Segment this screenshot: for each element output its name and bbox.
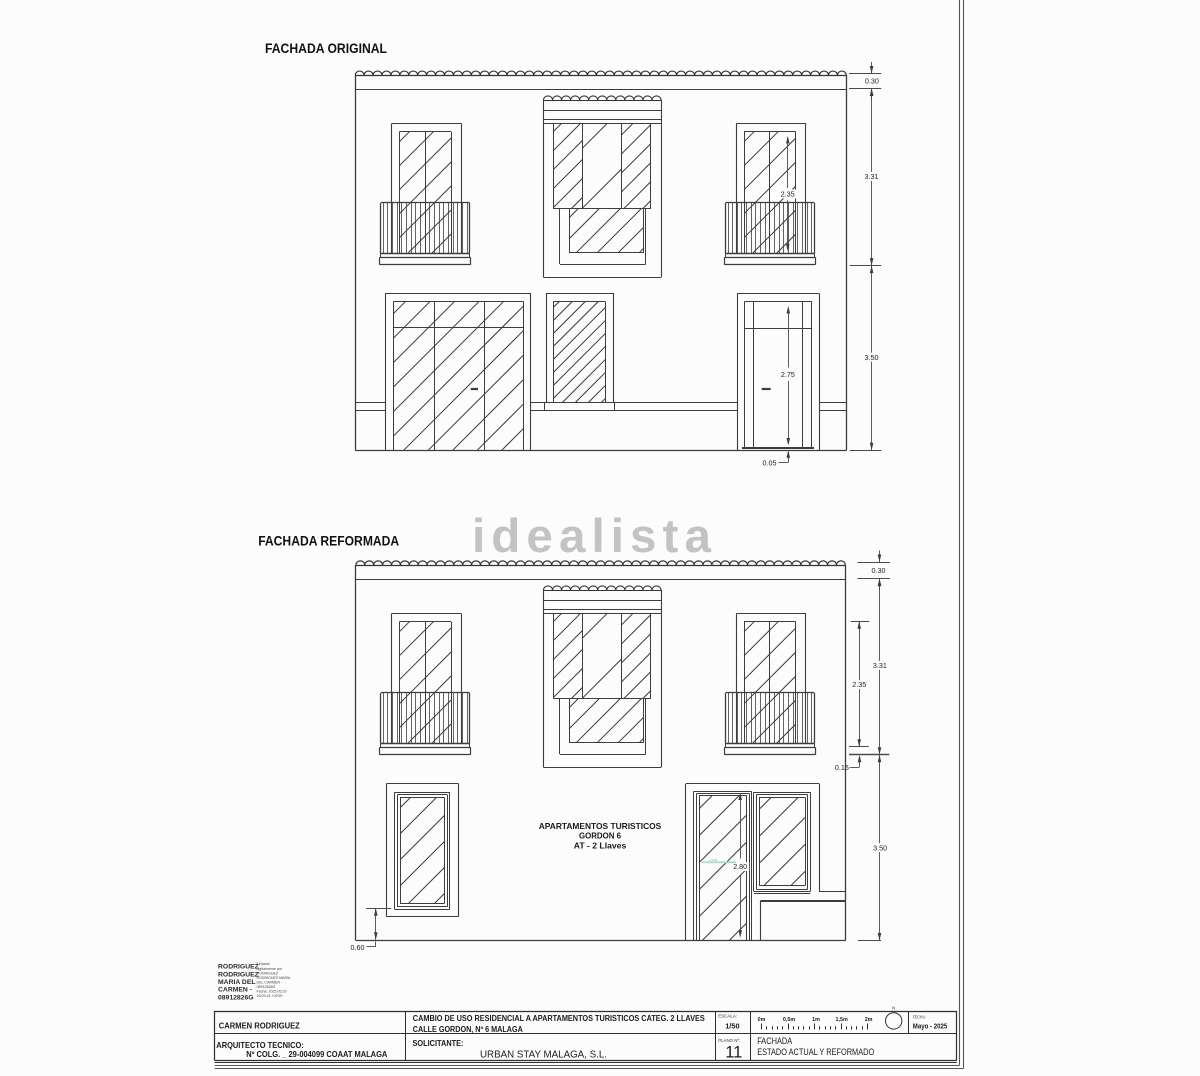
- svg-text:2.35: 2.35: [852, 680, 866, 689]
- svg-text:ESCALA:: ESCALA:: [718, 1014, 737, 1019]
- svg-text:0.30: 0.30: [865, 76, 879, 85]
- svg-text:URBAN STAY MALAGA, S.L.: URBAN STAY MALAGA, S.L.: [480, 1049, 607, 1061]
- svg-text:0.15: 0.15: [835, 763, 849, 772]
- svg-text:FACHADA: FACHADA: [757, 1036, 792, 1046]
- svg-text:Nº COLG. _ 29-004099 COAAT MA: Nº COLG. _ 29-004099 COAAT MALAGA: [246, 1050, 387, 1059]
- svg-text:RODRIGUEZ: RODRIGUEZ: [218, 971, 259, 978]
- svg-text:RODRIGUEZ: RODRIGUEZ: [257, 971, 279, 975]
- svg-text:18:09:24 +02'00': 18:09:24 +02'00': [257, 994, 284, 998]
- svg-text:Firmado: Firmado: [257, 962, 270, 966]
- svg-text:0.30: 0.30: [872, 566, 886, 575]
- svg-text:3.31: 3.31: [873, 661, 887, 670]
- svg-text:CARMEN RODRIGUEZ: CARMEN RODRIGUEZ: [219, 1021, 300, 1030]
- svg-text:2.75: 2.75: [781, 370, 795, 379]
- svg-text:MARIA DEL: MARIA DEL: [218, 979, 256, 986]
- svg-text:2.80: 2.80: [733, 862, 747, 871]
- svg-text:3.50: 3.50: [865, 353, 879, 362]
- svg-text:0,5m: 0,5m: [783, 1017, 795, 1023]
- svg-text:FACHADA REFORMADA: FACHADA REFORMADA: [258, 534, 399, 549]
- svg-text:FACHADA ORIGINAL: FACHADA ORIGINAL: [265, 41, 387, 56]
- svg-text:PLANO Nº:: PLANO Nº:: [718, 1038, 740, 1043]
- svg-text:APARTAMENTOS TURISTICOS: APARTAMENTOS TURISTICOS: [539, 822, 662, 831]
- svg-text:ARQUITECTO TECNICO:: ARQUITECTO TECNICO:: [216, 1041, 303, 1050]
- svg-text:CAMBIO DE USO RESIDENCIAL A AP: CAMBIO DE USO RESIDENCIAL A APARTAMENTOS…: [413, 1014, 706, 1023]
- svg-text:digitalmente por: digitalmente por: [257, 967, 283, 971]
- svg-text:2.35: 2.35: [781, 190, 795, 199]
- svg-text:3.31: 3.31: [865, 172, 879, 181]
- svg-text:11: 11: [725, 1044, 742, 1062]
- svg-text:RODRIGUEZ: RODRIGUEZ: [218, 964, 259, 971]
- svg-text:RODRIGUEZ MARIA: RODRIGUEZ MARIA: [257, 976, 292, 980]
- svg-text:08912826G: 08912826G: [218, 994, 254, 1001]
- svg-text:0.60: 0.60: [351, 943, 365, 952]
- svg-text:ESTADO ACTUAL Y REFORMADO: ESTADO ACTUAL Y REFORMADO: [757, 1047, 874, 1057]
- svg-text:3.50: 3.50: [873, 843, 887, 852]
- svg-text:FECHA:: FECHA:: [913, 1014, 926, 1019]
- svg-text:1m: 1m: [812, 1017, 820, 1023]
- svg-text:CALLE GORDON, Nº 6 MALAGA: CALLE GORDON, Nº 6 MALAGA: [413, 1025, 523, 1034]
- svg-text:0.05: 0.05: [763, 458, 777, 467]
- svg-text:N: N: [892, 1006, 895, 1011]
- svg-text:1,5m: 1,5m: [836, 1017, 848, 1023]
- svg-text:DEL CARMEN -: DEL CARMEN -: [257, 980, 283, 984]
- svg-text:GORDON 6: GORDON 6: [579, 832, 621, 841]
- svg-text:0m: 0m: [758, 1017, 766, 1023]
- svg-text:idealista: idealista: [472, 509, 717, 562]
- svg-text:Fecha: 2025.05.29: Fecha: 2025.05.29: [257, 990, 287, 994]
- svg-text:Mayo - 2025: Mayo - 2025: [913, 1022, 948, 1031]
- svg-text:08912826G: 08912826G: [257, 985, 276, 989]
- svg-text:CARMEN -: CARMEN -: [218, 987, 252, 994]
- svg-text:1/50: 1/50: [725, 1021, 739, 1030]
- svg-text:2m: 2m: [865, 1017, 873, 1023]
- svg-text:SOLICITANTE:: SOLICITANTE:: [413, 1039, 464, 1048]
- svg-text:AT - 2 Llaves: AT - 2 Llaves: [574, 841, 627, 850]
